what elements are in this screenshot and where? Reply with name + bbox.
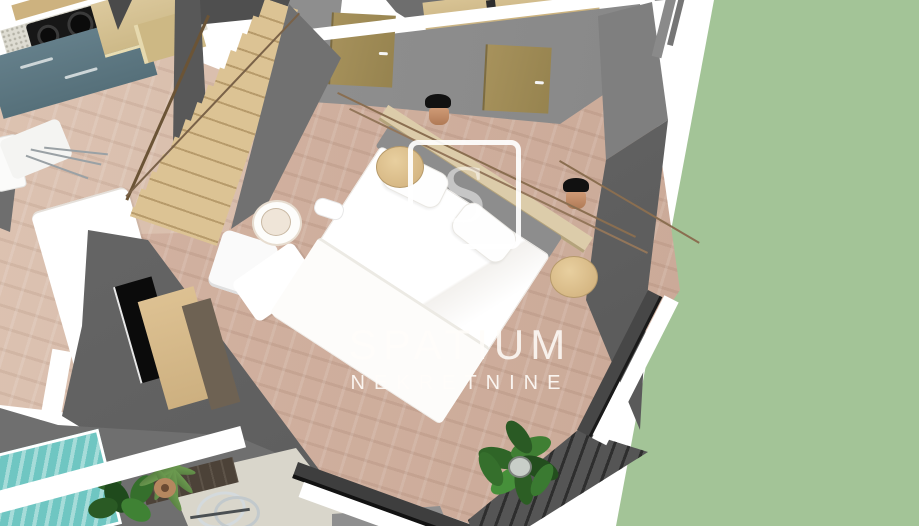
watermark-logo-letter: S bbox=[441, 153, 488, 237]
door bbox=[482, 44, 551, 113]
watermark-logo-frame: S bbox=[408, 140, 521, 249]
side-table-top bbox=[261, 208, 291, 236]
pendant-lamp bbox=[425, 94, 451, 108]
door-handle bbox=[379, 52, 388, 55]
floor-plant bbox=[470, 426, 566, 510]
cabinet-handle bbox=[20, 57, 54, 69]
watermark: SPATIUM NEKRETNINE bbox=[310, 324, 610, 395]
nightstand-stool bbox=[550, 256, 598, 298]
pendant-lamp bbox=[563, 178, 589, 192]
watermark-subtitle: NEKRETNINE bbox=[310, 372, 610, 395]
render-canvas: S SPATIUM NEKRETNINE bbox=[0, 0, 919, 526]
plant-pot bbox=[154, 478, 176, 498]
door-handle bbox=[535, 81, 544, 84]
plant-center bbox=[508, 456, 532, 478]
round-side-table bbox=[252, 200, 302, 246]
pot-soil bbox=[161, 484, 169, 492]
watermark-brand: SPATIUM bbox=[310, 324, 610, 366]
cabinet-handle bbox=[64, 67, 98, 79]
terracotta-pot bbox=[429, 108, 449, 125]
